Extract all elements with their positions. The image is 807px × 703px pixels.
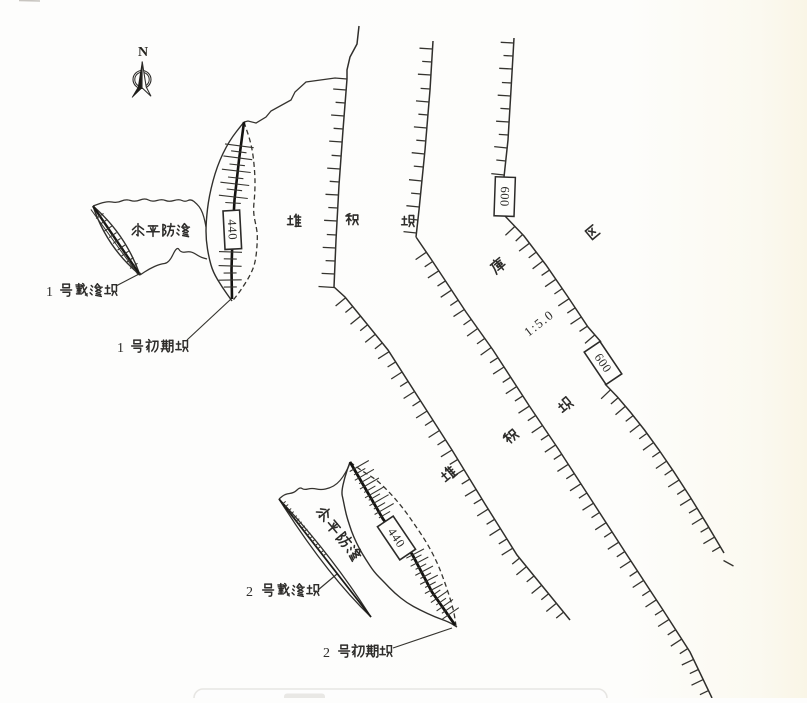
svg-text:2: 2 — [323, 646, 330, 661]
svg-text:1: 1 — [117, 341, 124, 356]
svg-text:1: 1 — [46, 285, 53, 300]
svg-text:2: 2 — [246, 585, 253, 600]
svg-text:N: N — [138, 45, 148, 60]
svg-text:440: 440 — [225, 219, 240, 241]
svg-text:600: 600 — [497, 186, 512, 207]
